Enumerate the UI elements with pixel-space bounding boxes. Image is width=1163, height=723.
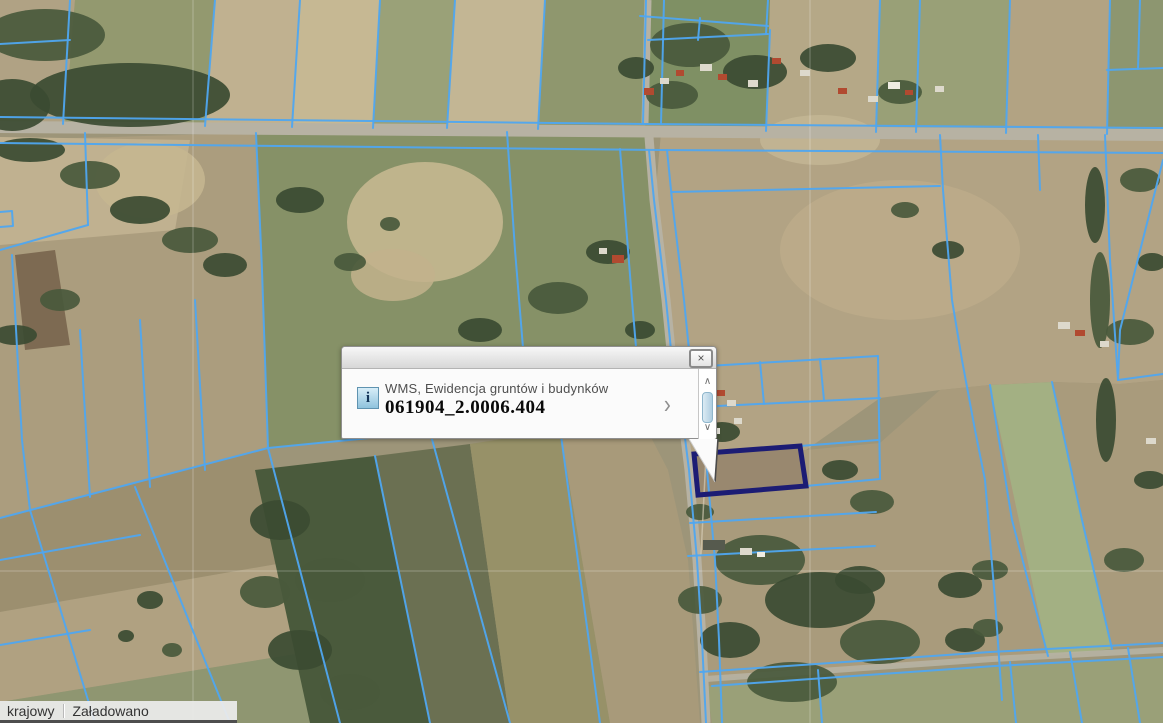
building-footprint [734,418,742,424]
tree-canopy [938,572,982,598]
building-footprint [1146,438,1156,444]
field-patch [447,0,545,129]
bare-field-patch [351,249,435,301]
tree-canopy [1085,167,1105,243]
tree-canopy [458,318,502,342]
building-footprint [1075,330,1085,336]
tree-canopy [40,289,80,311]
parcel-id-label: 061904_2.0006.404 [385,397,655,419]
tree-canopy [203,253,247,277]
building-footprint [888,82,900,89]
popup-scrollbar[interactable]: ∧ ∨ [698,369,716,439]
building-footprint [727,400,736,406]
building-footprint [660,78,669,84]
building-footprint [757,552,765,557]
building-footprint [1058,322,1070,329]
building-footprint [612,255,624,263]
tree-canopy [118,630,134,642]
info-window: × i WMS, Ewidencja gruntów i budynków 06… [341,346,717,439]
tree-canopy [1120,168,1160,192]
field-patch [373,0,455,128]
building-footprint [800,70,810,76]
bare-field-patch [760,115,880,165]
tree-canopy [1096,378,1116,462]
status-bar: krajowy Załadowano [0,701,237,720]
tree-canopy [250,500,310,540]
scroll-down-icon[interactable]: ∨ [699,422,716,434]
tree-canopy [110,196,170,224]
building-footprint [717,390,725,396]
tree-canopy [268,630,332,670]
tree-canopy [972,560,1008,580]
building-footprint [703,540,725,550]
status-divider [63,704,64,718]
building-footprint [838,88,847,94]
tree-canopy [800,44,856,72]
info-icon: i [357,387,379,409]
tree-canopy [137,591,163,609]
building-footprint [935,86,944,92]
map-viewport[interactable]: × i WMS, Ewidencja gruntów i budynków 06… [0,0,1163,723]
tree-canopy [891,202,919,218]
field-patch [1006,0,1110,134]
tree-canopy [60,161,120,189]
tree-canopy [835,566,885,594]
info-window-titlebar[interactable]: × [342,347,716,369]
building-footprint [740,548,752,555]
feature-info: WMS, Ewidencja gruntów i budynków 061904… [385,381,655,419]
tree-canopy [276,187,324,213]
building-footprint [868,96,878,102]
tree-canopy [1104,548,1144,572]
tree-canopy [295,558,365,602]
tree-canopy [334,253,366,271]
building-footprint [700,64,712,71]
tree-canopy [850,490,894,514]
tree-canopy [700,622,760,658]
field-patch [292,0,380,128]
close-icon[interactable]: × [689,349,713,368]
building-footprint [905,90,913,95]
building-footprint [748,80,758,87]
tree-canopy [240,576,290,608]
info-window-body: i WMS, Ewidencja gruntów i budynków 0619… [342,369,716,439]
info-window-pointer [686,439,722,485]
layer-source-label: WMS, Ewidencja gruntów i budynków [385,381,655,396]
field-patch [876,0,1010,133]
tree-canopy [162,227,218,253]
building-footprint [644,88,654,95]
scroll-up-icon[interactable]: ∧ [699,376,716,388]
tree-canopy [380,217,400,231]
tree-canopy [528,282,588,314]
building-footprint [599,248,607,254]
tree-canopy [973,619,1003,637]
tree-canopy [625,321,655,339]
building-footprint [718,74,727,80]
building-footprint [676,70,684,76]
tree-canopy [822,460,858,480]
status-layer-name[interactable]: krajowy [7,703,54,719]
tree-canopy [162,643,182,657]
status-load-state: Załadowano [72,703,148,719]
chevron-right-icon[interactable]: › [664,391,671,417]
tree-canopy [618,57,654,79]
building-footprint [1100,341,1109,347]
building-footprint [772,58,781,64]
bare-field-patch [780,180,1020,320]
scrollbar-thumb[interactable] [702,392,713,423]
